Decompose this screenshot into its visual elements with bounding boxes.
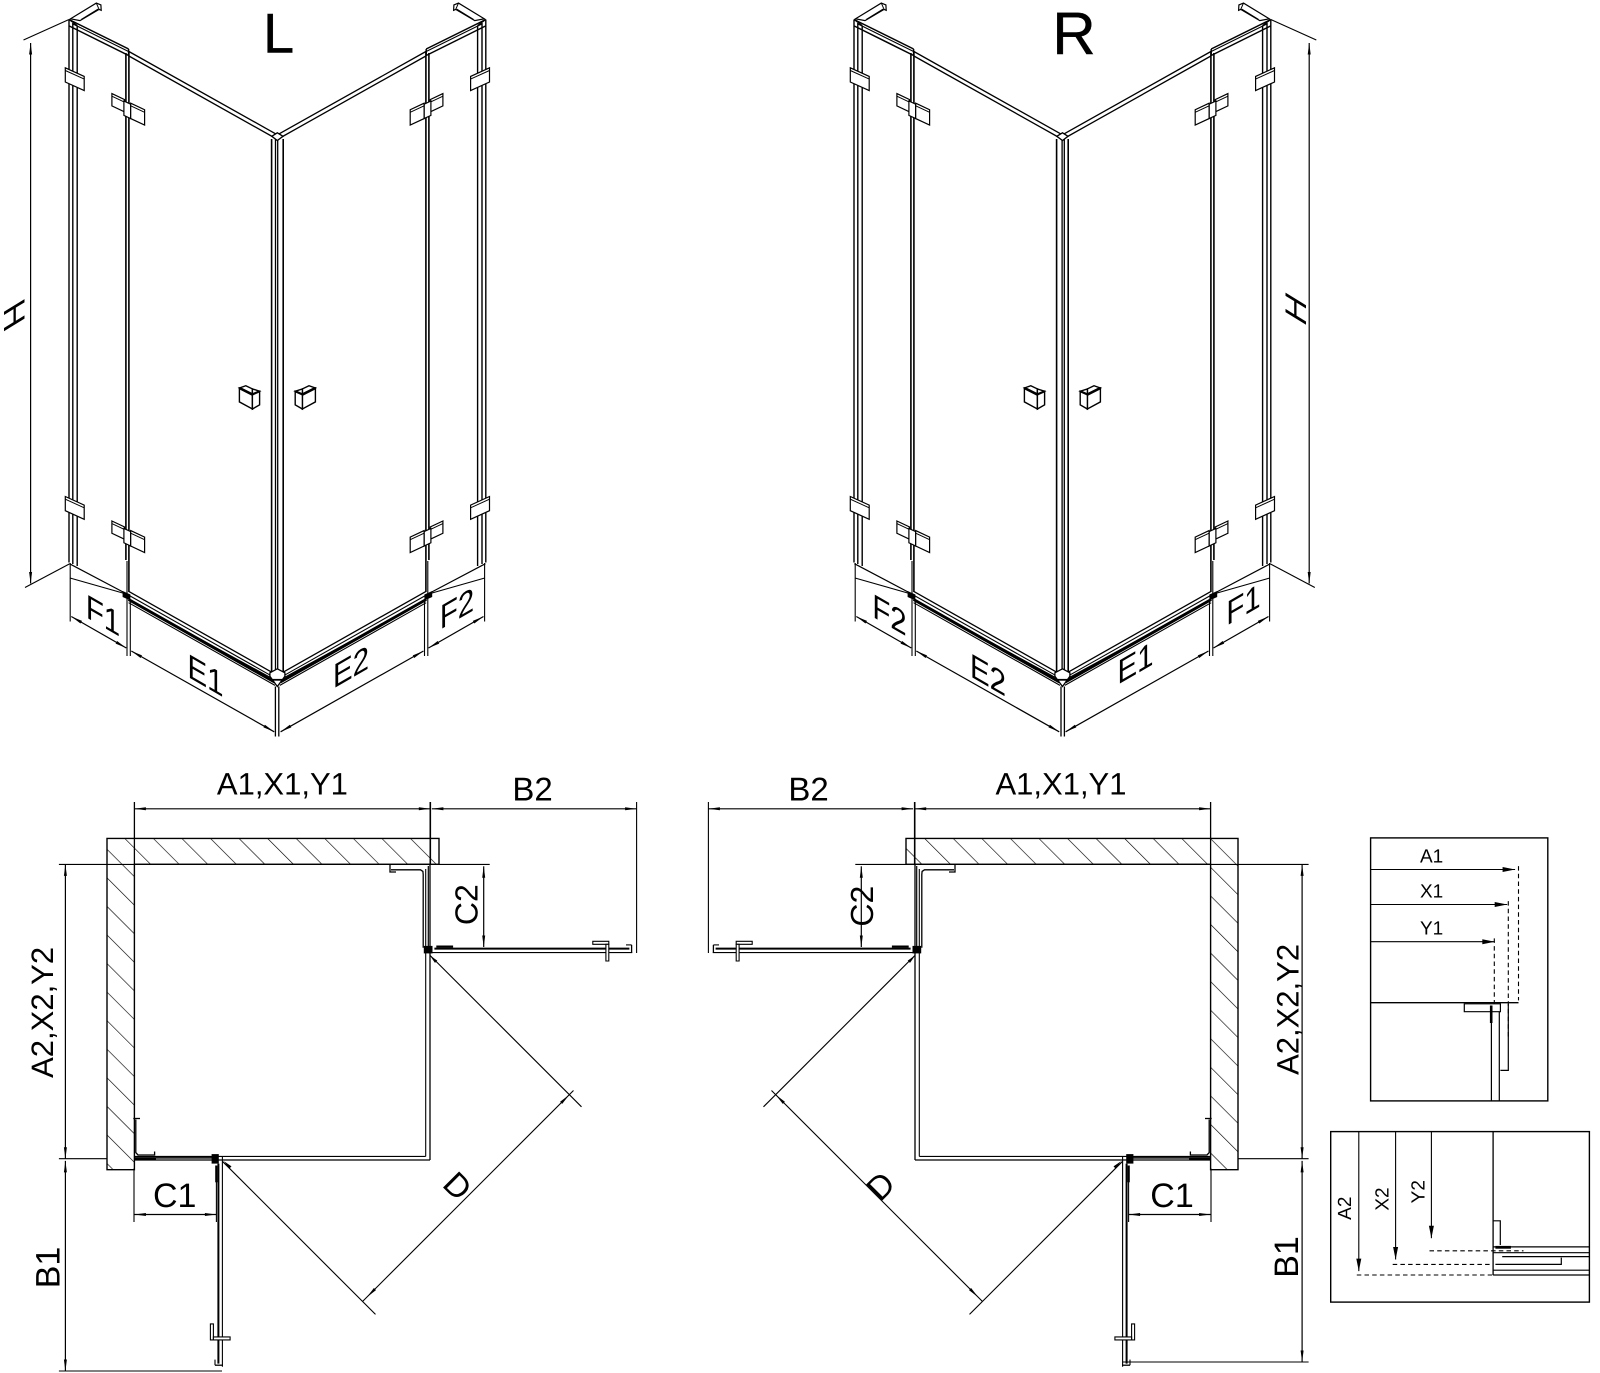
svg-text:C2: C2 <box>448 884 484 925</box>
svg-text:A1,X1,Y1: A1,X1,Y1 <box>217 767 348 802</box>
svg-text:X1: X1 <box>1420 882 1443 903</box>
svg-text:A1: A1 <box>1420 847 1443 868</box>
svg-text:Y1: Y1 <box>1420 919 1443 940</box>
svg-text:Y2: Y2 <box>1409 1180 1430 1203</box>
svg-text:A2,X2,Y2: A2,X2,Y2 <box>1271 944 1306 1075</box>
svg-text:A2: A2 <box>1335 1197 1356 1220</box>
svg-text:B2: B2 <box>512 771 552 808</box>
svg-text:B1: B1 <box>1268 1236 1306 1278</box>
svg-text:C1: C1 <box>1150 1177 1193 1215</box>
svg-text:A2,X2,Y2: A2,X2,Y2 <box>25 947 60 1078</box>
svg-text:L: L <box>263 2 294 65</box>
svg-text:A1,X1,Y1: A1,X1,Y1 <box>996 767 1127 802</box>
svg-text:C2: C2 <box>844 886 880 927</box>
svg-text:B2: B2 <box>788 771 828 808</box>
svg-text:B1: B1 <box>30 1247 68 1289</box>
svg-text:C1: C1 <box>153 1177 196 1215</box>
svg-text:X2: X2 <box>1373 1187 1394 1210</box>
svg-text:R: R <box>1052 0 1095 67</box>
